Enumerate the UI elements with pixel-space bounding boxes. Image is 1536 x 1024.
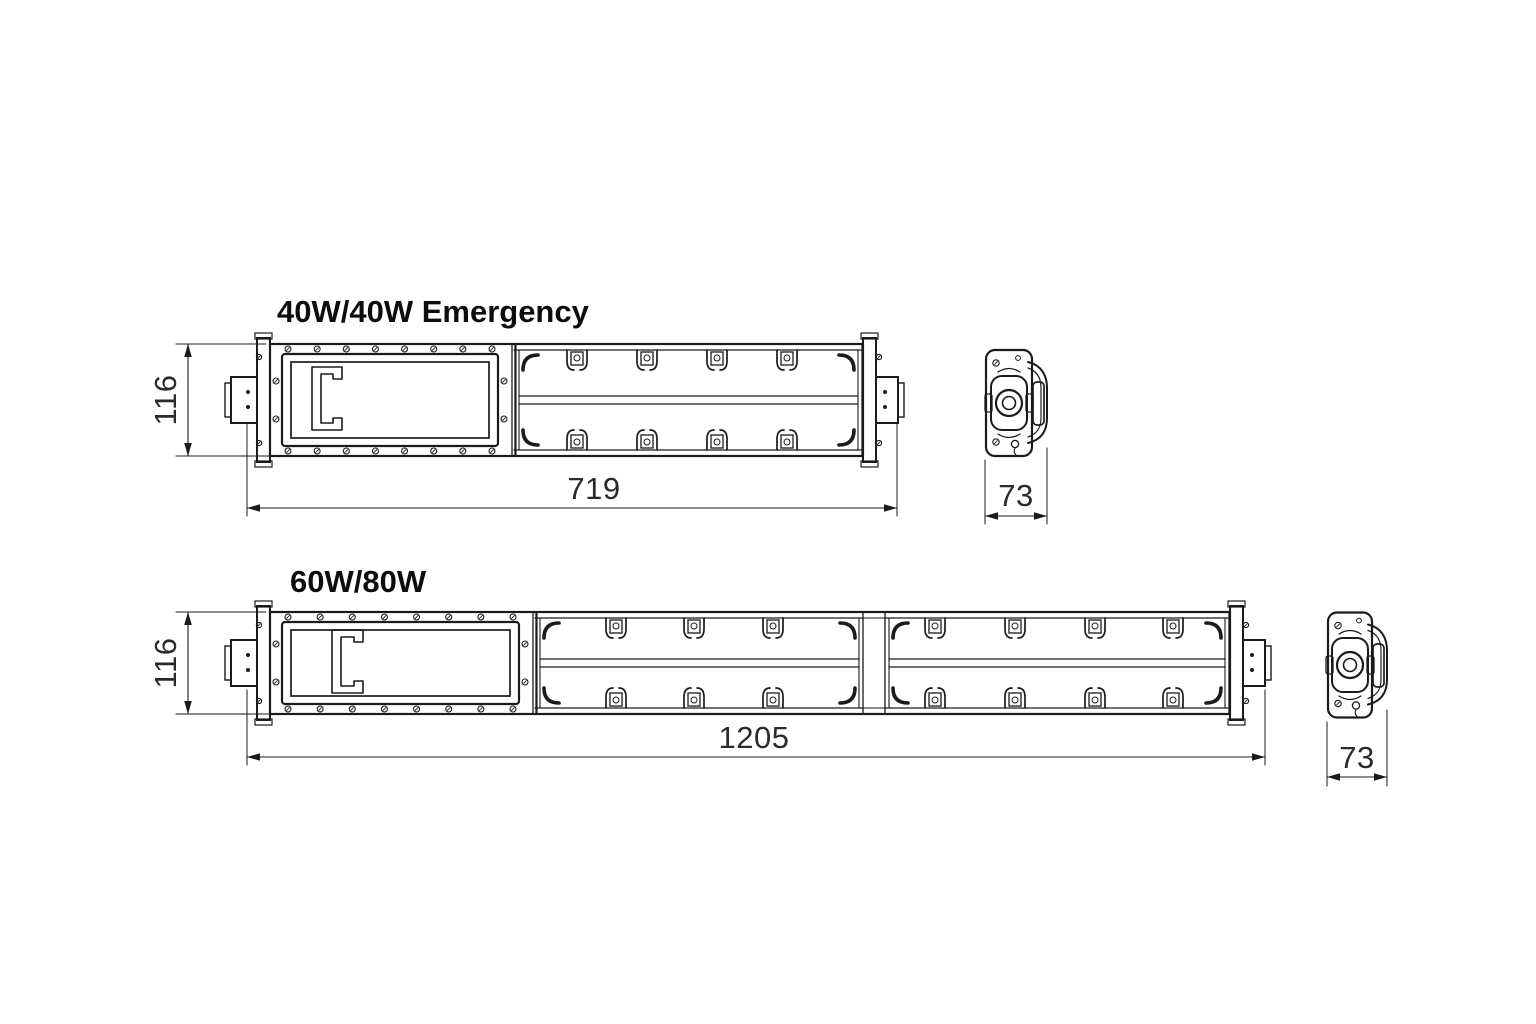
fixture1-height-label: 116 bbox=[148, 375, 183, 426]
fixture2-length-label: 1205 bbox=[719, 720, 790, 755]
luminaire-dimension-drawing: 40W/40W Emergency 60W/80W 116 719 73 116… bbox=[0, 0, 1536, 1024]
fixture2-depth-dimension: 73 bbox=[1327, 710, 1387, 786]
fixture2-end-view bbox=[1326, 613, 1387, 718]
fixture1-end-view bbox=[985, 350, 1047, 456]
fixture2-height-label: 116 bbox=[148, 638, 183, 689]
fixture1-depth-dimension: 73 bbox=[985, 448, 1047, 524]
fixture1-front-view bbox=[225, 333, 904, 467]
fixture2-front-view bbox=[225, 601, 1271, 725]
technical-drawing-canvas: 40W/40W Emergency 60W/80W 116 719 73 116… bbox=[0, 0, 1536, 1024]
fixture1-height-dimension: 116 bbox=[148, 344, 334, 456]
fixture1-title: 40W/40W Emergency bbox=[277, 294, 590, 329]
fixture2-depth-label: 73 bbox=[1339, 740, 1374, 775]
fixture2-title: 60W/80W bbox=[290, 564, 427, 599]
fixture2-length-dimension: 1205 bbox=[247, 690, 1265, 765]
fixture1-depth-label: 73 bbox=[998, 478, 1033, 513]
fixture2-height-dimension: 116 bbox=[148, 612, 334, 714]
fixture1-length-label: 719 bbox=[567, 471, 620, 506]
